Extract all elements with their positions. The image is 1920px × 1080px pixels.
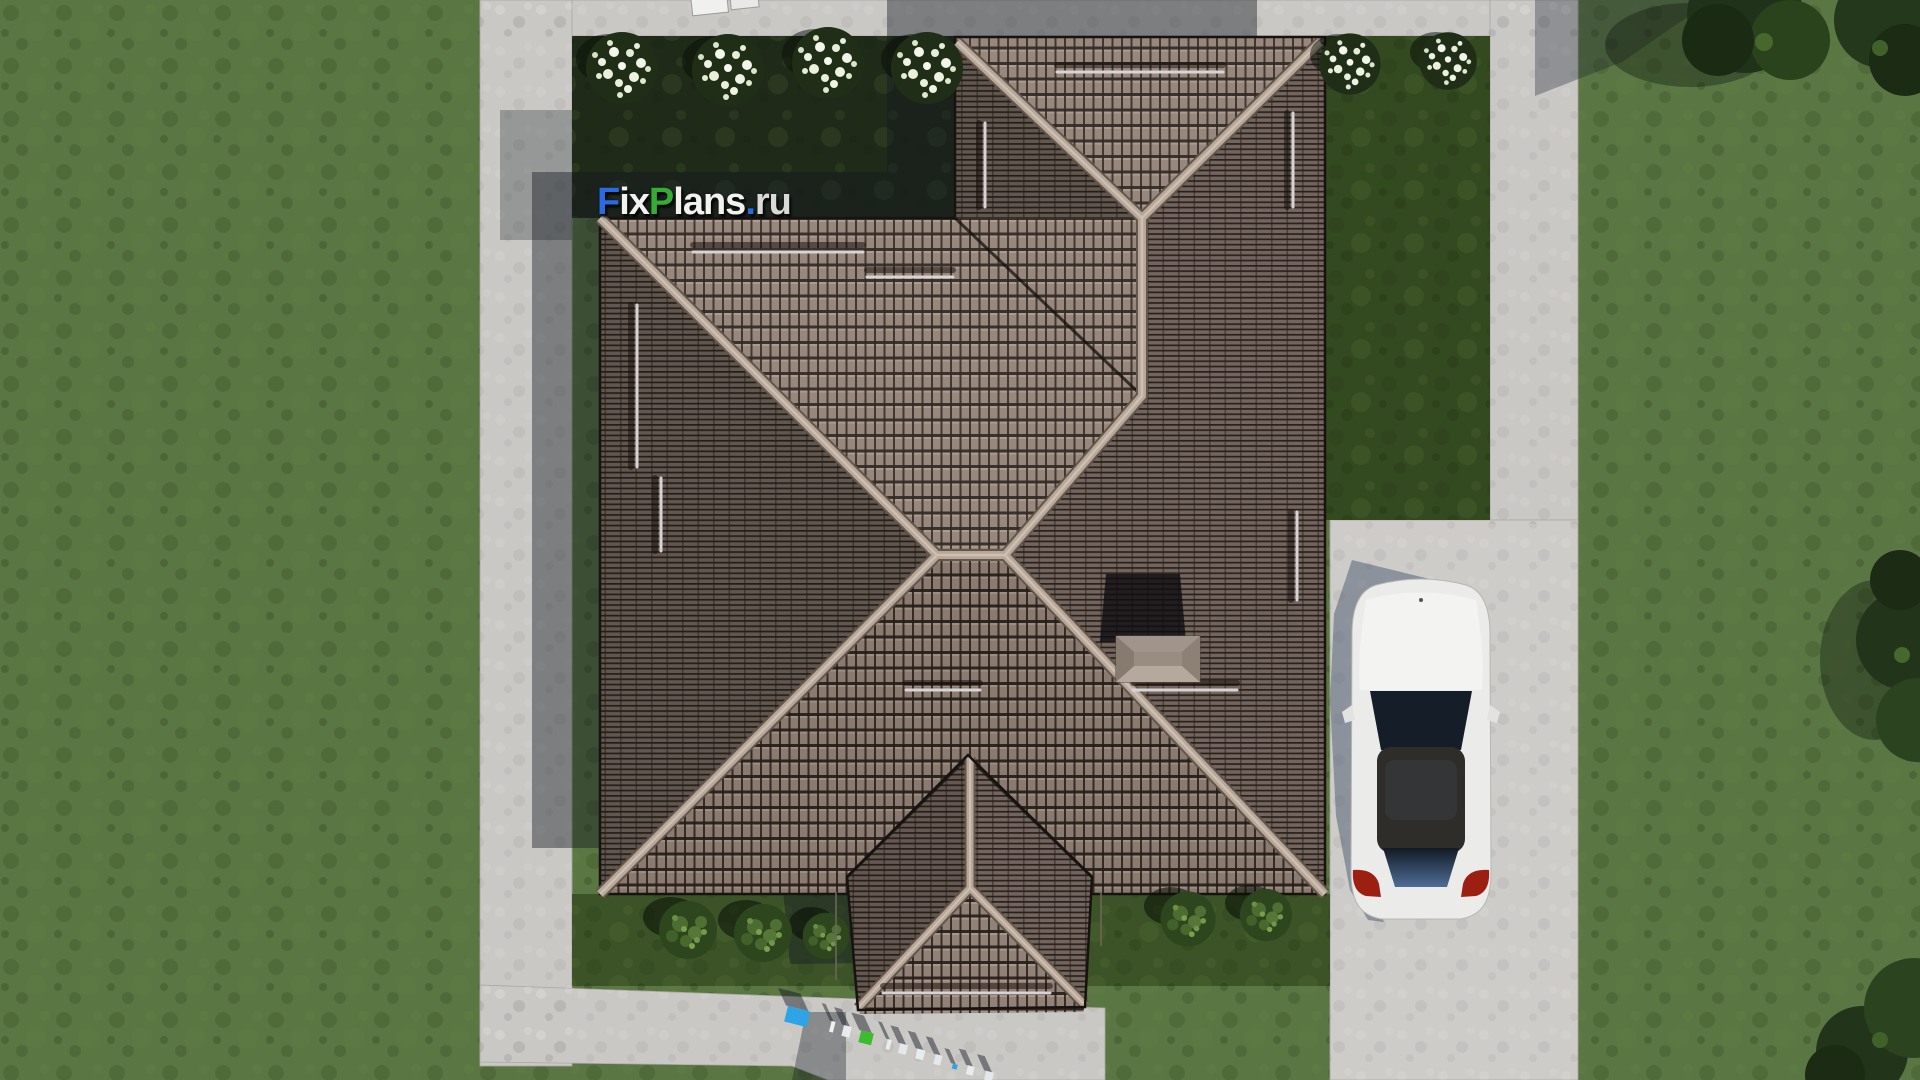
aerial-site-render: FixPlans.ru [0,0,1920,1080]
chimney-shadow [1100,574,1186,642]
watermark-segment: P [649,181,673,223]
white-flower-bush [692,34,764,106]
car-hood [1359,593,1483,691]
car-windshield [1370,691,1472,750]
watermark-segment: . [745,181,755,223]
white-flower-bush [1319,33,1380,94]
green-bush [803,913,849,959]
green-bush [1240,889,1292,941]
green-bush [734,904,792,962]
car-rear-window [1383,848,1459,887]
white-flower-bush [792,27,864,99]
green-bush [659,901,717,959]
watermark-segment: F [597,181,619,223]
fixplans-watermark: FixPlans.ru [597,181,791,224]
white-flower-bush [586,32,658,104]
car [1330,560,1500,922]
white-flower-bush [1419,32,1477,90]
watermark-segment: ix [619,181,649,223]
watermark-segment: ru [755,181,791,223]
white-flower-bush [891,32,963,104]
scene-graphics [0,0,1920,1080]
green-bush [1160,891,1215,946]
watermark-segment: lans [673,181,745,223]
